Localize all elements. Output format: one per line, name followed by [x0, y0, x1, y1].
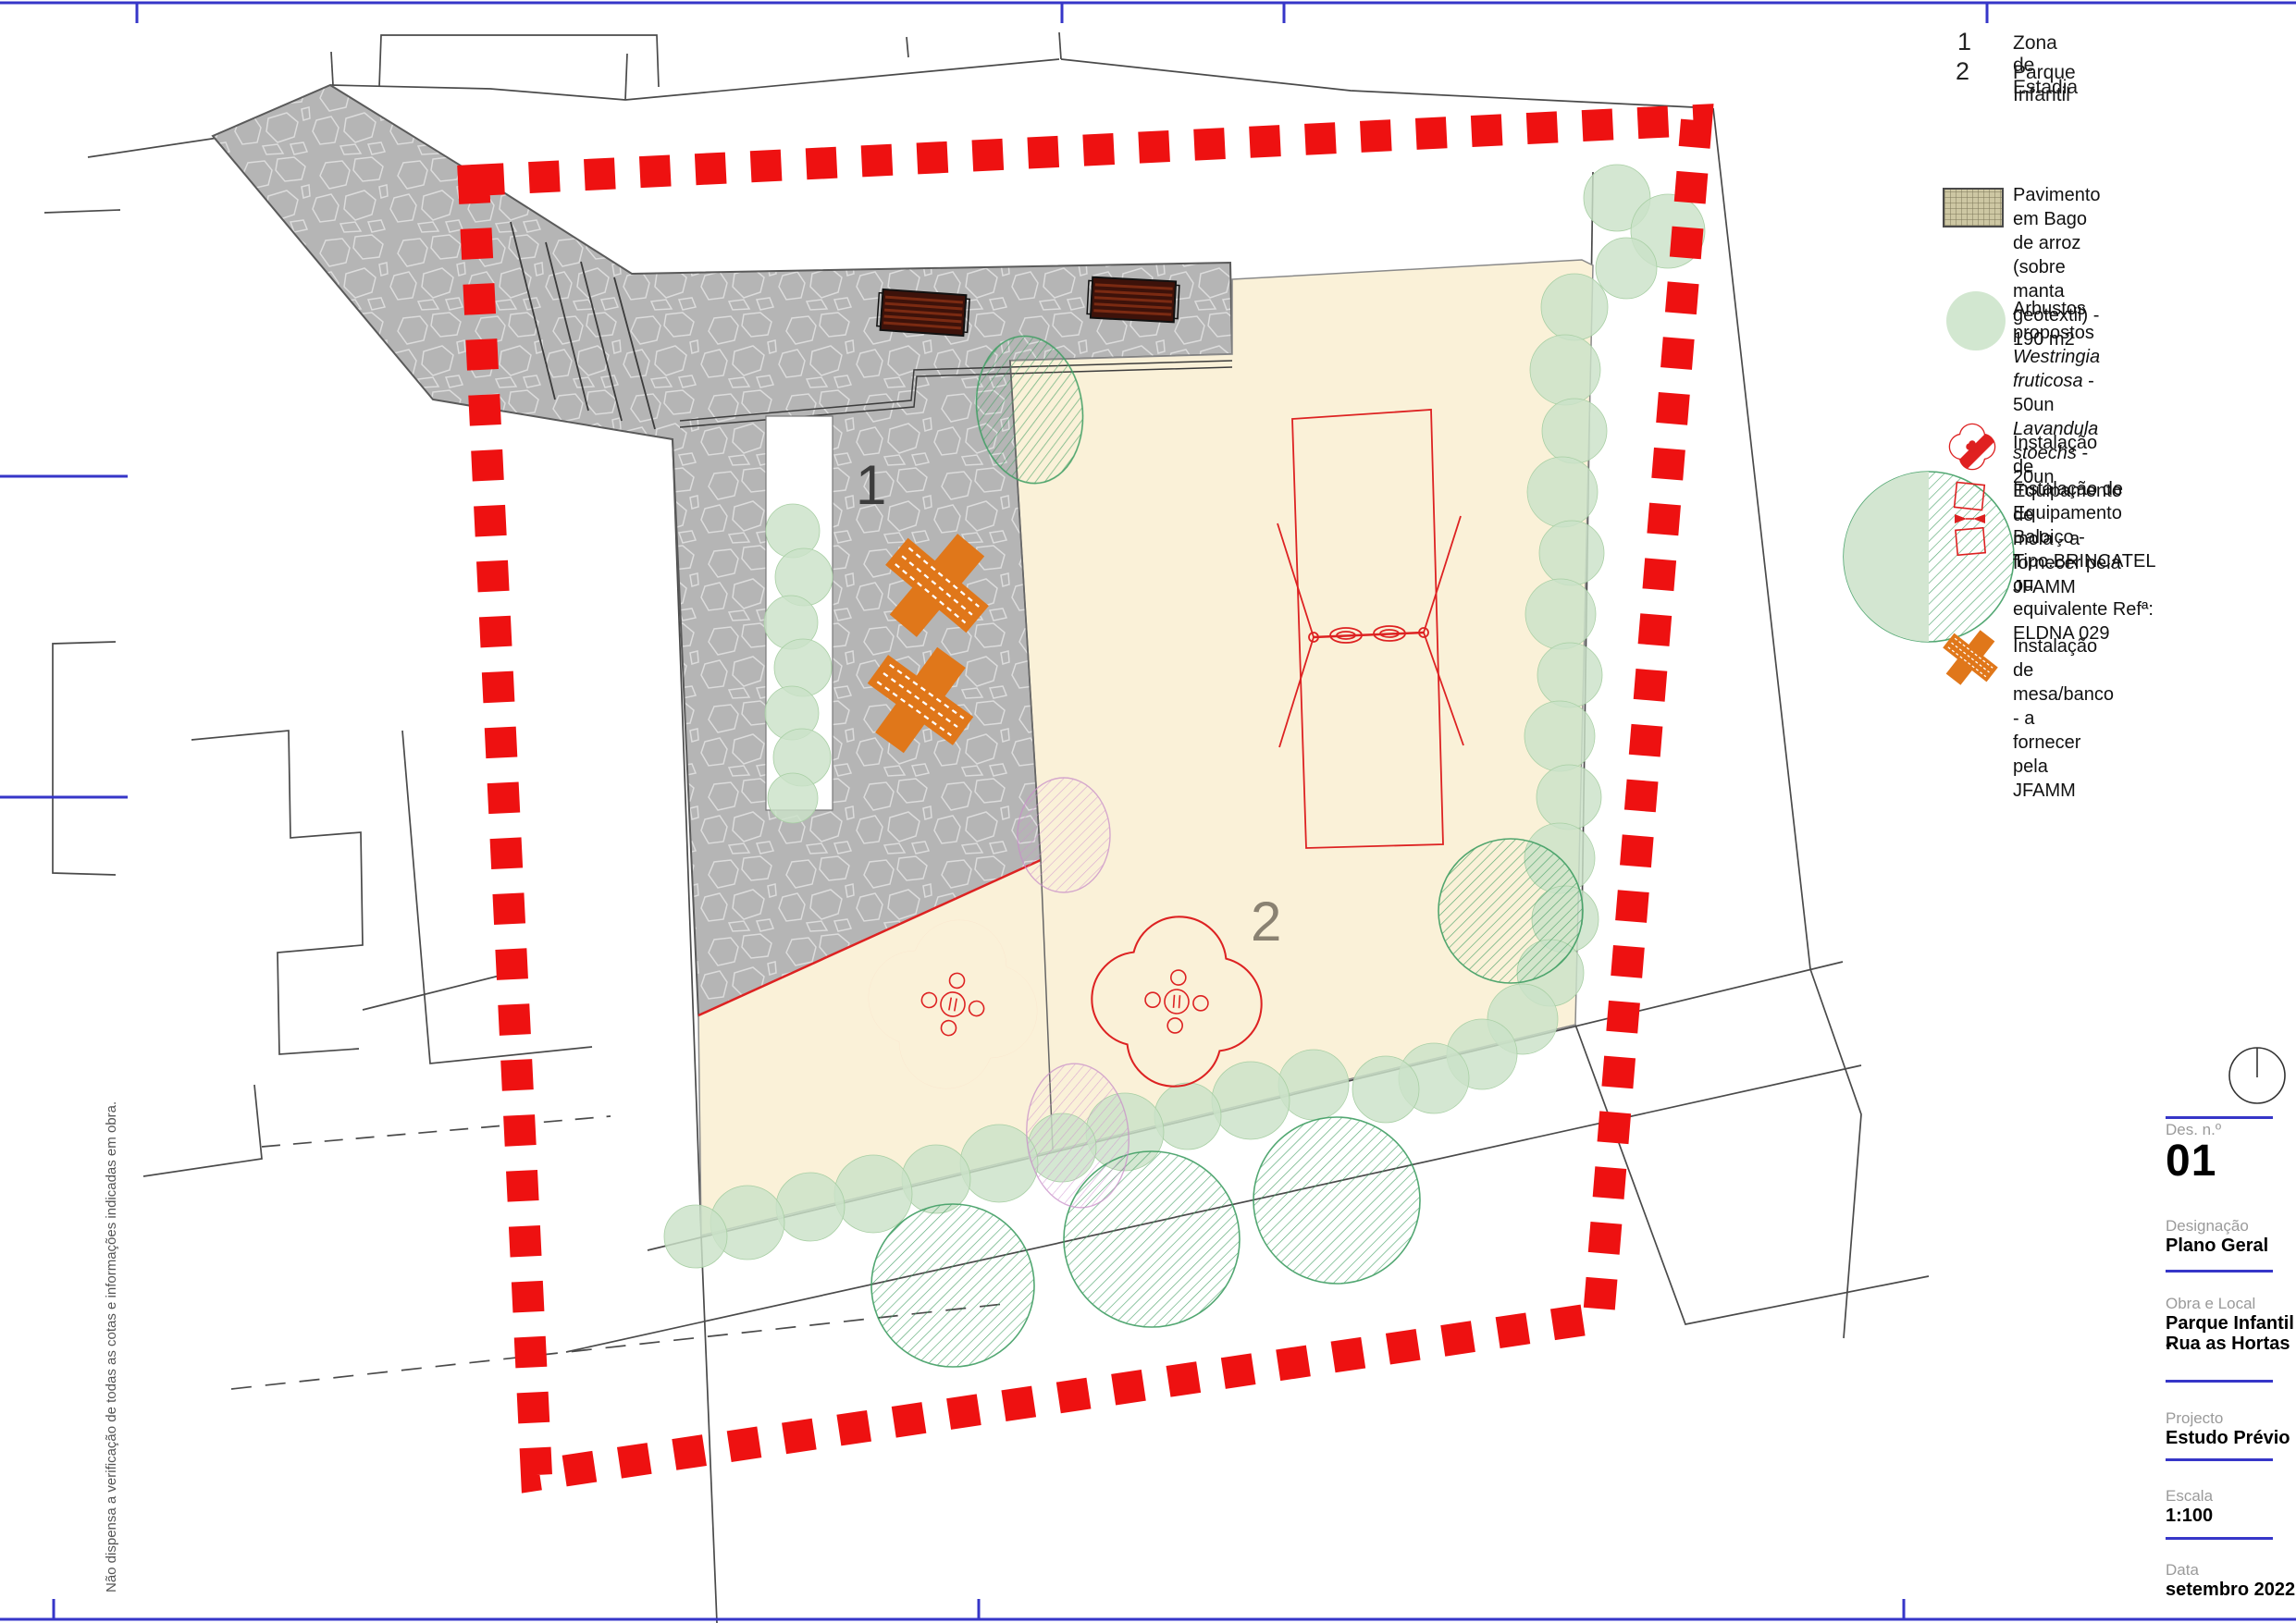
north-symbol-icon	[2229, 1048, 2285, 1103]
site-value-line2: Rua as Hortas	[2166, 1334, 2290, 1355]
title-block-divider	[2166, 1270, 2273, 1273]
legend-paving-line1: Pavimento em Bago de arroz	[2013, 183, 2101, 255]
title-block-divider	[2166, 1116, 2273, 1119]
legend-shrubs-title: Arbustos propostos	[2013, 297, 2100, 345]
designation-label: Designação	[2166, 1217, 2249, 1236]
plan-sheet: 1 2 1 Zona de Estadia 2 Parque Infantil …	[0, 0, 2296, 1623]
zone1-label: 1	[856, 454, 886, 516]
drawing-number-value: 01	[2166, 1136, 2216, 1187]
bench	[1087, 277, 1179, 322]
legend-zone1-number: 1	[1957, 28, 1971, 56]
swing-legend-icon	[1948, 481, 1993, 557]
designation-value: Plano Geral	[2166, 1236, 2268, 1257]
title-block-divider	[2166, 1380, 2273, 1383]
title-block-divider	[2166, 1537, 2273, 1540]
zone2-label: 2	[1251, 891, 1281, 953]
legend-zone2-label: Parque Infantil	[2013, 62, 2076, 106]
spring-rider-legend-icon	[1945, 420, 1999, 473]
picnic-table-legend-icon	[1940, 627, 2001, 688]
legend-mesa-line2: fornecer pela JFAMM	[2013, 731, 2114, 803]
disclaimer-note: Não dispensa a verificação de todas as c…	[104, 982, 119, 1592]
site-plan-drawing: 1 2	[0, 0, 2296, 1623]
date-label: Data	[2166, 1561, 2199, 1580]
site-label: Obra e Local	[2166, 1295, 2255, 1313]
legend-mesa-line1: Instalação de mesa/banco - a	[2013, 634, 2114, 731]
project-label: Projecto	[2166, 1409, 2223, 1428]
bench	[877, 289, 970, 337]
legend-baloico-text: Instalação de Equipamento Baloiço - Tipo…	[2013, 477, 2155, 646]
legend-mesa-text: Instalação de mesa/banco - a fornecer pe…	[2013, 634, 2114, 803]
shrub-swatch-icon	[1946, 291, 2006, 350]
legend-baloico-line1: Instalação de Equipamento	[2013, 477, 2155, 525]
paving-swatch-icon	[1943, 188, 2004, 227]
title-block-divider	[2166, 1458, 2273, 1461]
sc-value: 1:100	[2166, 1506, 2213, 1527]
legend-baloico-line2: Baloiço - Tipo.BRINCATEL ou	[2013, 525, 2155, 597]
project-value: Estudo Prévio	[2166, 1428, 2290, 1449]
legend-shrubs-sp1: Westringia fruticosa - 50un	[2013, 345, 2100, 417]
sc-label: Escala	[2166, 1487, 2213, 1506]
date-value: setembro 2022	[2166, 1580, 2295, 1601]
legend-zone2-number: 2	[1956, 57, 1969, 86]
